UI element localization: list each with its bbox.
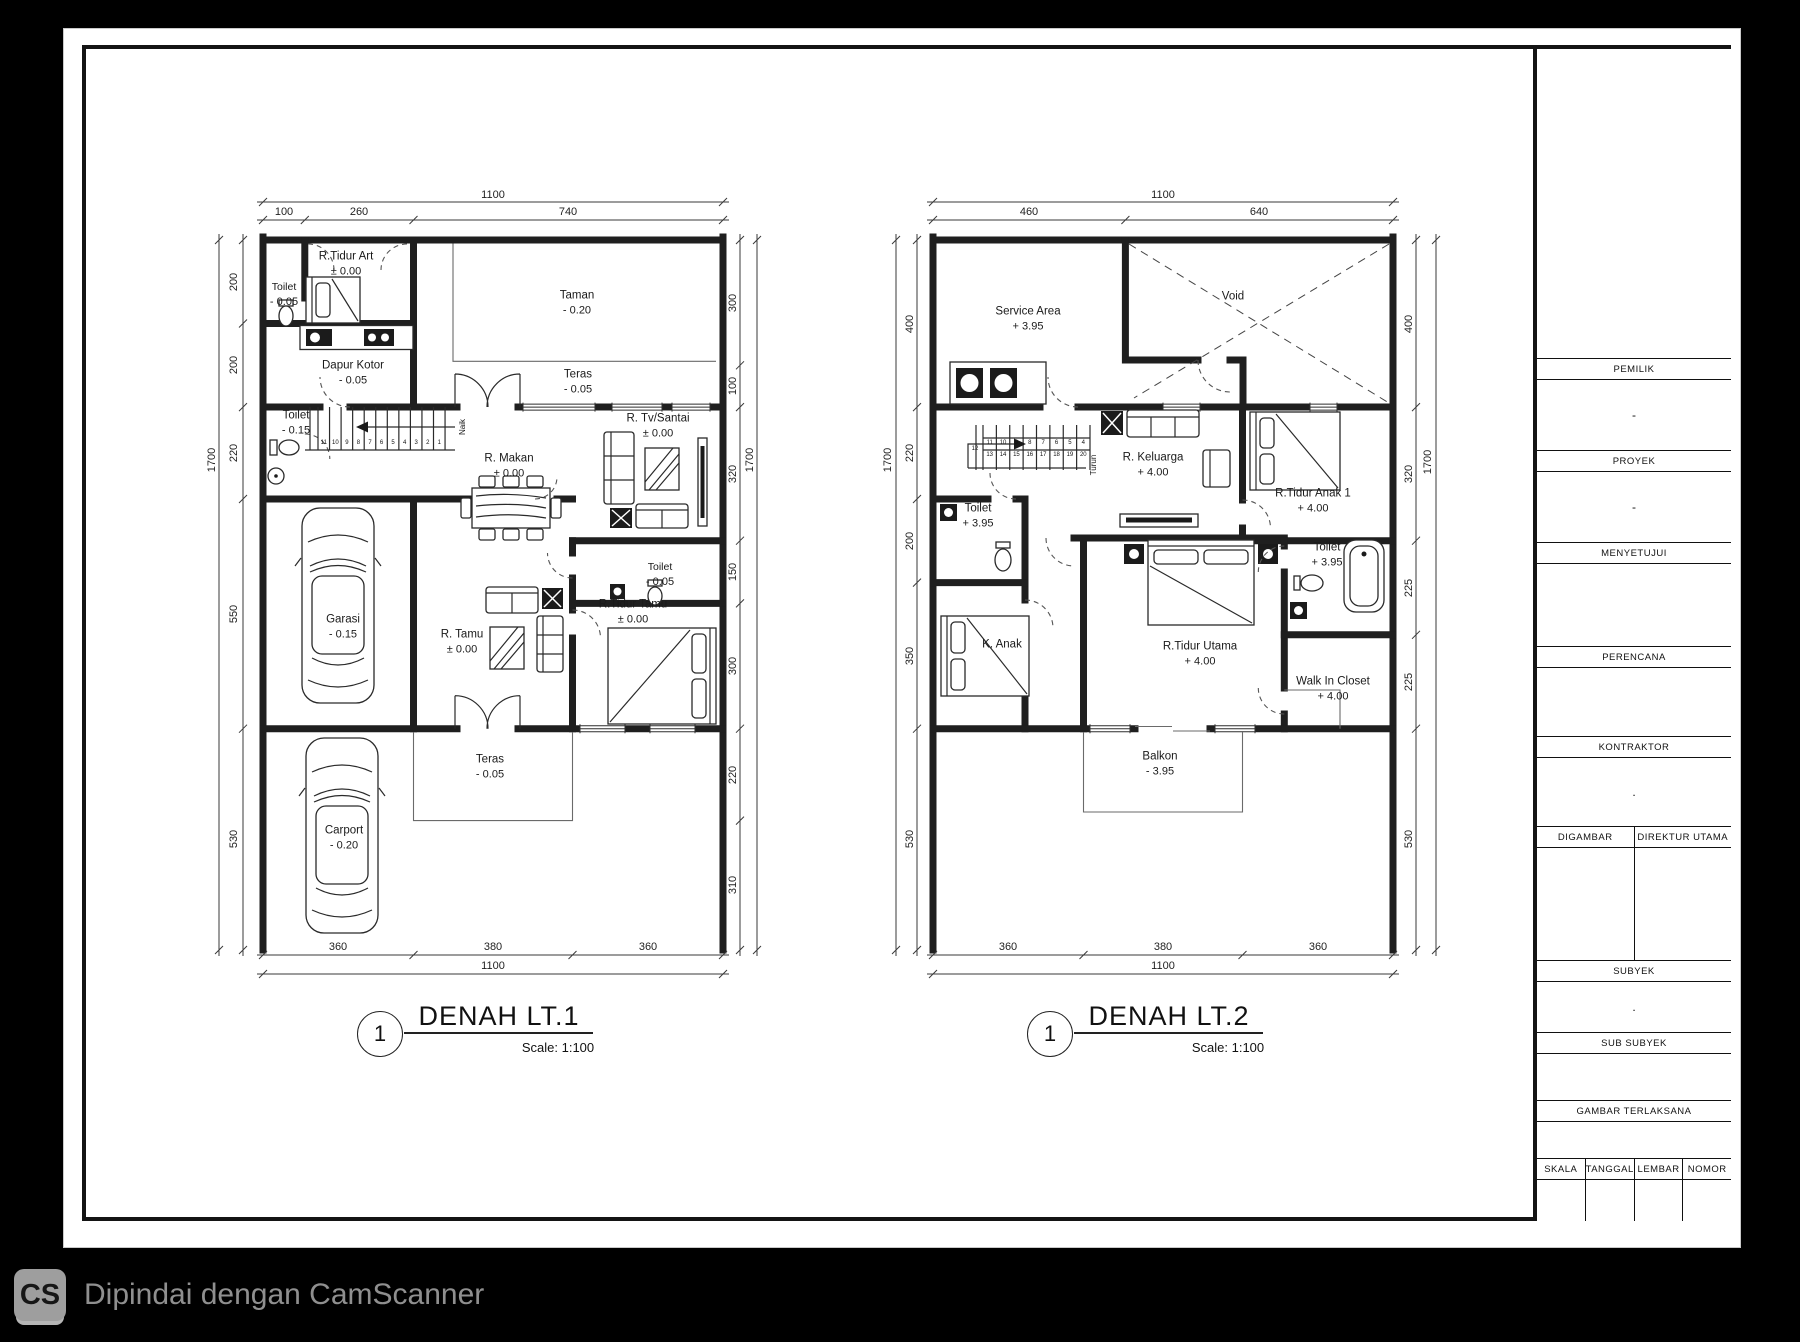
- dim-label: 310: [727, 876, 739, 894]
- scanned-drawing-page: Toilet- 0.05R.Tidur Art± 0.00Taman- 0.20…: [0, 0, 1800, 1342]
- dim-label: 1100: [481, 189, 505, 201]
- dim-label: 350: [904, 647, 916, 665]
- dim-label: 200: [228, 356, 240, 374]
- dim-label: 530: [904, 830, 916, 848]
- dim-label: 400: [904, 315, 916, 333]
- dim-label: 380: [484, 941, 502, 953]
- stair-number: 16: [1026, 452, 1033, 458]
- skala-header: SKALA: [1537, 1159, 1585, 1179]
- pemilik-header: PEMILIK: [1537, 358, 1731, 380]
- room-label: Toilet+ 3.95: [963, 501, 994, 530]
- menyetujui-header: MENYETUJUI: [1537, 542, 1731, 564]
- title-underline: [404, 1032, 593, 1034]
- dim-label: 1700: [206, 448, 218, 472]
- stair-number: 10: [332, 440, 339, 446]
- stair-number: 4: [1082, 440, 1085, 446]
- room-label: Garasi- 0.15: [326, 612, 360, 641]
- dim-label: 360: [329, 941, 347, 953]
- dim-label: 300: [727, 657, 739, 675]
- pemilik-value: -: [1537, 380, 1731, 450]
- room-label: Void: [1222, 290, 1244, 305]
- proyek-value: -: [1537, 472, 1731, 542]
- dim-label: 360: [1309, 941, 1327, 953]
- plan1-scale: Scale: 1:100: [498, 1040, 618, 1055]
- stair-number: 14: [1000, 452, 1007, 458]
- dim-label: 200: [904, 532, 916, 550]
- stair-number: 2: [426, 440, 429, 446]
- room-label: Turun: [1089, 455, 1099, 476]
- dim-label: 220: [228, 444, 240, 462]
- gambar-terlaksana-header: GAMBAR TERLAKSANA: [1537, 1100, 1731, 1122]
- title-block-top-area: [1537, 49, 1731, 358]
- stair-number: 3: [415, 440, 418, 446]
- perencana-header: PERENCANA: [1537, 646, 1731, 668]
- camscanner-watermark-text: Dipindai dengan CamScanner: [84, 1278, 484, 1312]
- camscanner-logo-icon: CS: [14, 1269, 66, 1321]
- room-label: R.Tidur Utama+ 4.00: [1163, 639, 1237, 668]
- nomor-header: NOMOR: [1682, 1159, 1731, 1179]
- stair-number: 6: [1055, 440, 1058, 446]
- dim-label: 320: [1403, 465, 1415, 483]
- dim-label: 380: [1154, 941, 1172, 953]
- room-label: Walk In Closet+ 4.00: [1296, 674, 1370, 703]
- skala-row-cells: [1537, 1180, 1731, 1221]
- stair-number: 13: [986, 452, 993, 458]
- sub-subyek-value: [1537, 1054, 1731, 1100]
- menyetujui-value: [1537, 564, 1731, 646]
- room-label: Toilet- 0.15: [282, 408, 310, 437]
- dim-label: 320: [727, 465, 739, 483]
- stair-number: 5: [391, 440, 394, 446]
- stair-number: 8: [357, 440, 360, 446]
- stair-number: 17: [1040, 452, 1047, 458]
- room-label: R.Tidur Tamu± 0.00: [599, 597, 667, 626]
- detail-bubble: 1: [1027, 1011, 1073, 1057]
- kontraktor-header: KONTRAKTOR: [1537, 736, 1731, 758]
- title-underline: [1074, 1032, 1263, 1034]
- lembar-header: LEMBAR: [1634, 1159, 1683, 1179]
- detail-bubble: 1: [357, 1011, 403, 1057]
- dim-label: 400: [1403, 315, 1415, 333]
- stair-number: 11: [987, 440, 993, 446]
- dim-label: 1700: [744, 448, 756, 472]
- perencana-value: [1537, 668, 1731, 736]
- room-label: Toilet+ 3.95: [1312, 540, 1343, 569]
- dim-label: 220: [727, 766, 739, 784]
- tanggal-cell: [1585, 1180, 1634, 1221]
- plan2-scale: Scale: 1:100: [1168, 1040, 1288, 1055]
- stair-number: 10: [1000, 440, 1007, 446]
- digambar-direktur-header: DIGAMBAR DIREKTUR UTAMA: [1537, 826, 1731, 848]
- dim-label: 460: [1020, 206, 1038, 218]
- stair-number: 5: [1068, 440, 1071, 446]
- room-label: R.Tidur Anak 1+ 4.00: [1275, 486, 1351, 515]
- dim-label: 200: [228, 273, 240, 291]
- dim-label: 225: [1403, 673, 1415, 691]
- gambar-terlaksana-value: [1537, 1122, 1731, 1158]
- tanggal-header: TANGGAL: [1585, 1159, 1634, 1179]
- dim-label: 220: [904, 444, 916, 462]
- direktur-utama-cell: [1634, 848, 1732, 960]
- stair-number: 20: [1080, 452, 1087, 458]
- kontraktor-value: .: [1537, 758, 1731, 826]
- stair-number: 18: [1053, 452, 1060, 458]
- room-label: Teras- 0.05: [564, 367, 592, 396]
- room-label: Carport- 0.20: [325, 823, 363, 852]
- dim-label: 1700: [1422, 450, 1434, 474]
- camscanner-footer: CS Dipindai dengan CamScanner: [0, 1248, 1800, 1342]
- dim-label: 100: [275, 206, 293, 218]
- room-label: Taman- 0.20: [560, 288, 595, 317]
- skala-cell: [1537, 1180, 1585, 1221]
- stair-number: 15: [1013, 452, 1020, 458]
- subyek-header: SUBYEK: [1537, 960, 1731, 982]
- stair-number: 9: [345, 440, 348, 446]
- stair-number: 8: [1028, 440, 1031, 446]
- room-label: Dapur Kotor- 0.05: [322, 358, 384, 387]
- room-label: K. Anak: [982, 638, 1022, 653]
- room-label: R.Tidur Art± 0.00: [319, 249, 374, 278]
- dim-label: 1100: [481, 960, 505, 972]
- stair-number: 6: [380, 440, 383, 446]
- dim-label: 1100: [1151, 189, 1175, 201]
- stair-number: 1: [438, 440, 441, 446]
- sub-subyek-header: SUB SUBYEK: [1537, 1032, 1731, 1054]
- stair-number: 7: [368, 440, 371, 446]
- stair-number: 19: [1067, 452, 1074, 458]
- dim-label: 300: [727, 294, 739, 312]
- plan1-title: DENAH LT.1: [404, 1001, 594, 1032]
- stair-number: 4: [403, 440, 406, 446]
- room-label: R. Tv/Santai± 0.00: [626, 411, 689, 440]
- room-label: Toilet- 0.05: [270, 281, 298, 309]
- title-block: PEMILIK - PROYEK - MENYETUJUI PERENCANA …: [1533, 49, 1731, 1221]
- dim-label: 550: [228, 605, 240, 623]
- room-label: R. Tamu± 0.00: [441, 627, 484, 656]
- room-label: Toilet- 0.05: [646, 561, 674, 589]
- dim-label: 530: [228, 830, 240, 848]
- digambar-cell: [1537, 848, 1634, 960]
- proyek-header: PROYEK: [1537, 450, 1731, 472]
- room-label: Balkon- 3.95: [1142, 749, 1177, 778]
- stair-number: 12: [972, 446, 979, 452]
- room-label: Naik: [458, 419, 468, 435]
- dim-label: 100: [727, 377, 739, 395]
- stair-number: 9: [1015, 440, 1018, 446]
- plan2-title: DENAH LT.2: [1074, 1001, 1264, 1032]
- lembar-cell: [1634, 1180, 1683, 1221]
- digambar-direktur-cells: [1537, 848, 1731, 960]
- dim-label: 360: [639, 941, 657, 953]
- dim-label: 360: [999, 941, 1017, 953]
- room-label: R. Makan± 0.00: [484, 451, 533, 480]
- room-label: Service Area+ 3.95: [995, 304, 1060, 333]
- dim-label: 150: [727, 563, 739, 581]
- dim-label: 225: [1403, 579, 1415, 597]
- dim-label: 1700: [882, 448, 894, 472]
- skala-row-header: SKALA TANGGAL LEMBAR NOMOR: [1537, 1158, 1731, 1180]
- direktur-utama-header: DIREKTUR UTAMA: [1634, 827, 1732, 847]
- dim-label: 640: [1250, 206, 1268, 218]
- dim-label: 1100: [1151, 960, 1175, 972]
- digambar-header: DIGAMBAR: [1537, 827, 1634, 847]
- dim-label: 260: [350, 206, 368, 218]
- subyek-value: .: [1537, 982, 1731, 1032]
- stair-number: 11: [321, 440, 327, 446]
- room-label: R. Keluarga+ 4.00: [1123, 450, 1184, 479]
- nomor-cell: [1682, 1180, 1731, 1221]
- room-label: Teras- 0.05: [476, 752, 504, 781]
- dim-label: 740: [559, 206, 577, 218]
- label-overlay: Toilet- 0.05R.Tidur Art± 0.00Taman- 0.20…: [0, 0, 1800, 1342]
- dim-label: 530: [1403, 830, 1415, 848]
- stair-number: 7: [1042, 440, 1045, 446]
